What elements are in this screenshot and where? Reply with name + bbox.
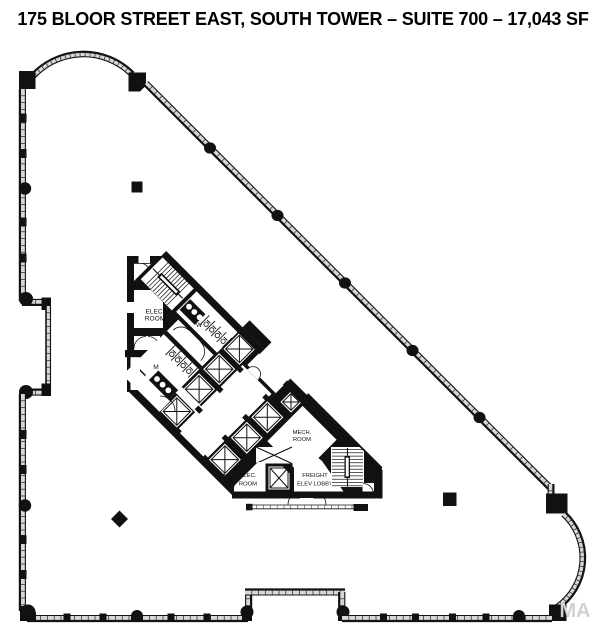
svg-text:MA: MA — [559, 600, 590, 622]
svg-text:MECH.: MECH. — [293, 430, 312, 436]
svg-text:ROOM: ROOM — [239, 482, 257, 488]
svg-text:M: M — [153, 364, 159, 371]
svg-text:ROOM: ROOM — [145, 316, 166, 323]
svg-text:W: W — [196, 322, 203, 329]
svg-text:ELEC.: ELEC. — [240, 473, 257, 479]
svg-text:FREIGHT: FREIGHT — [302, 473, 328, 479]
svg-text:175 BLOOR STREET EAST, SOUTH T: 175 BLOOR STREET EAST, SOUTH TOWER – SUI… — [17, 9, 588, 29]
svg-text:ROOM: ROOM — [293, 437, 311, 443]
svg-text:ELEV LOBBY: ELEV LOBBY — [297, 482, 333, 488]
svg-text:ELEC.: ELEC. — [145, 309, 164, 316]
